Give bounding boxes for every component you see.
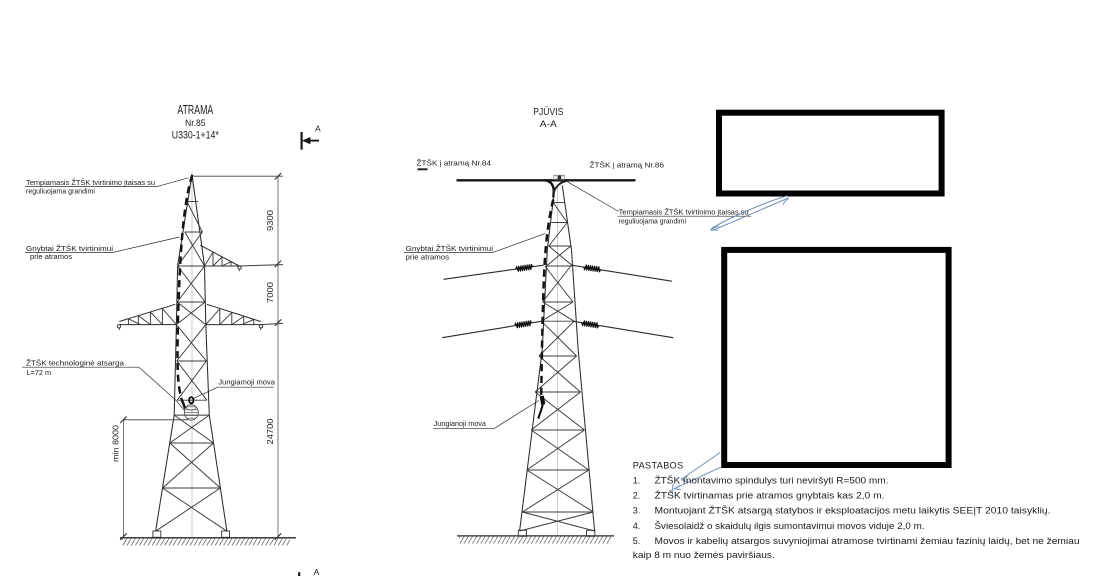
svg-text:PJŪVIS: PJŪVIS: [533, 106, 563, 118]
svg-text:ŽTŠK į atramą Nr.84: ŽTŠK į atramą Nr.84: [417, 158, 492, 167]
svg-text:ATRAMA: ATRAMA: [177, 103, 213, 117]
svg-text:U330-1+14*: U330-1+14*: [172, 130, 220, 142]
svg-text:ŽTŠK technologinė atsarga: ŽTŠK technologinė atsarga: [26, 358, 124, 367]
svg-text:A: A: [315, 123, 321, 133]
svg-text:L=72 m: L=72 m: [27, 370, 52, 377]
svg-text:Gnybtai ŽTŠK tvirtinimui: Gnybtai ŽTŠK tvirtinimui: [26, 244, 114, 253]
svg-text:ŽTŠK tvirtinamas prie atramos: ŽTŠK tvirtinamas prie atramos gnybtais k…: [655, 490, 885, 500]
svg-text:1.: 1.: [633, 475, 641, 485]
svg-text:Montuojant ŽTŠK atsargą statyb: Montuojant ŽTŠK atsargą statybos ir eksp…: [655, 506, 1051, 516]
svg-text:kaip 8 m nuo žemės paviršiaus.: kaip 8 m nuo žemės paviršiaus.: [633, 550, 775, 560]
svg-text:PASTABOS: PASTABOS: [633, 461, 684, 472]
svg-text:2.: 2.: [633, 490, 641, 500]
svg-text:Jungianoji mova: Jungianoji mova: [434, 421, 486, 428]
svg-text:5.: 5.: [633, 536, 641, 546]
svg-text:min 8000: min 8000: [112, 424, 121, 462]
svg-text:Nr.85: Nr.85: [185, 118, 206, 129]
svg-text:24700: 24700: [266, 418, 275, 445]
svg-text:ŽTŠK montavimo spindulys turi: ŽTŠK montavimo spindulys turi neviršyti …: [655, 475, 889, 485]
svg-text:reguliuojama grandimi: reguliuojama grandimi: [26, 189, 95, 196]
svg-text:A: A: [314, 567, 320, 576]
svg-text:Gnybtai ŽTŠK tvirtinimui: Gnybtai ŽTŠK tvirtinimui: [406, 244, 494, 253]
svg-text:prie atramos: prie atramos: [406, 255, 450, 262]
svg-text:Movos ir kabelių atsargos suvy: Movos ir kabelių atsargos suvyniojimai a…: [655, 536, 1080, 546]
svg-text:A-A: A-A: [540, 119, 558, 130]
svg-text:Tempiamasis ŽTŠK tvirtinimo įt: Tempiamasis ŽTŠK tvirtinimo įtaisas su: [26, 178, 155, 187]
svg-text:Šviesolaidž o skaidulų ilgis s: Šviesolaidž o skaidulų ilgis sumontavimu…: [655, 521, 925, 531]
svg-text:7000: 7000: [266, 281, 275, 303]
svg-text:ŽTŠK į atramą Nr.86: ŽTŠK į atramą Nr.86: [590, 160, 665, 169]
svg-text:4.: 4.: [633, 521, 641, 531]
svg-text:3.: 3.: [633, 506, 641, 516]
svg-text:Jungiamoji mova: Jungiamoji mova: [218, 380, 275, 387]
svg-text:Tempiamasis ŽTŠK tvirtinimo įt: Tempiamasis ŽTŠK tvirtinimo įtaisas su: [619, 208, 749, 217]
svg-text:prie atramos: prie atramos: [30, 254, 73, 261]
svg-text:9300: 9300: [266, 209, 275, 231]
svg-text:reguliuojama grandimi: reguliuojama grandimi: [619, 219, 687, 226]
